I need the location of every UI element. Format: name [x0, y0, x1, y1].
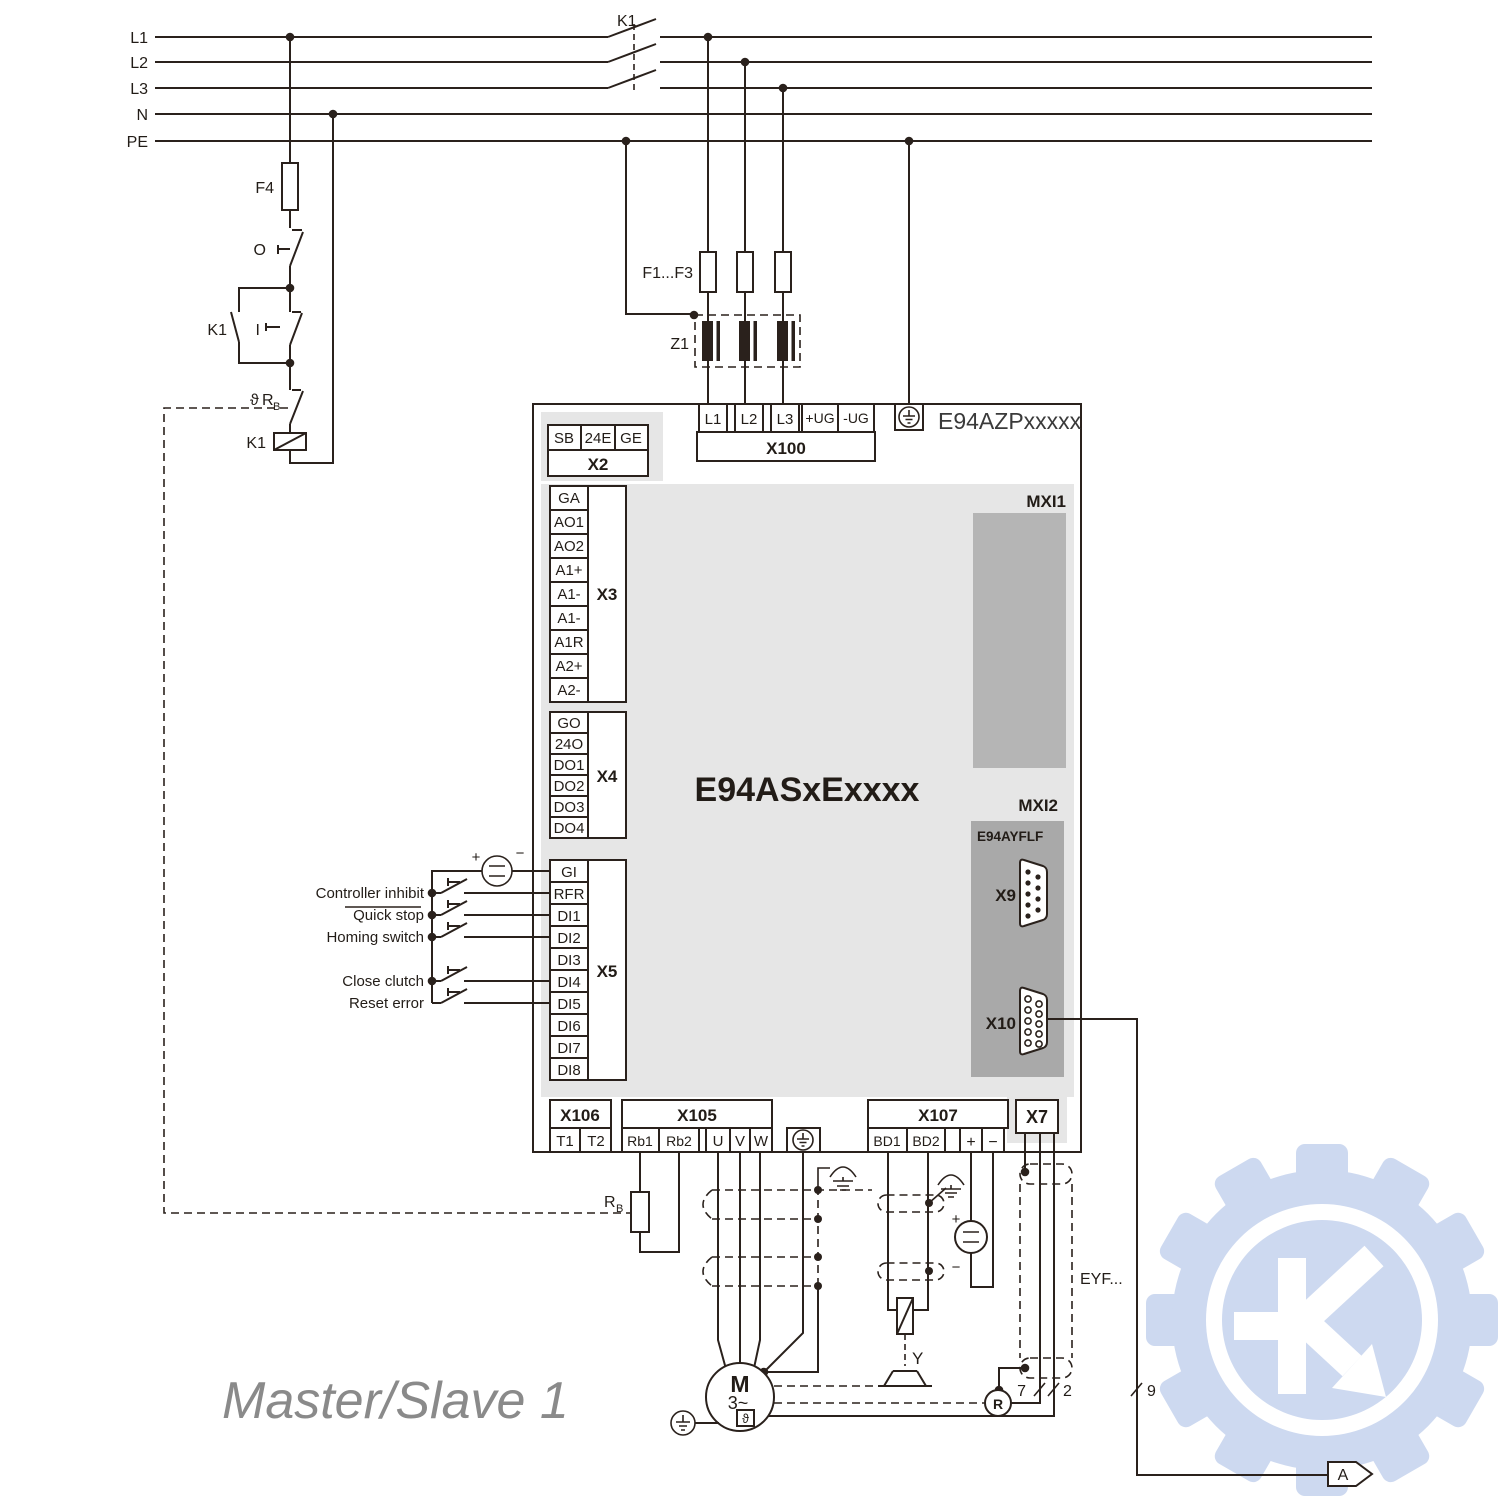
terminal-x2: SB 24E GE X2: [548, 425, 648, 476]
stop-button-contact: [278, 230, 303, 266]
x10-label: X10: [986, 1014, 1016, 1033]
terminal-x7-label: X7: [1026, 1107, 1048, 1127]
brake-circuit: Y + −: [878, 1152, 993, 1386]
pin-do2: DO2: [554, 778, 585, 795]
pin-a1r: A1R: [554, 634, 583, 651]
rail-label-n: N: [136, 107, 148, 124]
terminal-x5-label: X5: [597, 962, 618, 981]
pin-t1: T1: [556, 1133, 574, 1150]
terminal-x106-label: X106: [560, 1106, 600, 1125]
dc-supply-plus: +: [472, 849, 481, 866]
fuse-f4: [282, 163, 298, 210]
fuse-f1: [700, 252, 716, 292]
fuse-f2: [737, 252, 753, 292]
x10-connector: [1020, 988, 1047, 1055]
thermal-contact: [290, 363, 303, 433]
dc-supply-minus: −: [516, 845, 525, 862]
pin-rfr: RFR: [554, 886, 585, 903]
rail-label-l1: L1: [130, 30, 148, 47]
digital-input-circuit: + − Controller inhibit Quick stop Homing…: [316, 845, 550, 1012]
pin-plus-ug: +UG: [805, 410, 834, 426]
brake-resistor-sub: B: [616, 1203, 623, 1215]
pin-do4: DO4: [554, 820, 585, 837]
watermark-gear-logo: [1146, 1144, 1498, 1496]
motor-earth-icon: [671, 1411, 695, 1435]
rail-label-l2: L2: [130, 55, 148, 72]
feedback-circuit: EYF... R 7 2: [754, 1133, 1123, 1416]
pin-24o: 24O: [555, 736, 583, 753]
brake-resistor-label: R: [604, 1194, 616, 1211]
pin-ge: GE: [620, 430, 642, 447]
wire-count-2: 2: [1063, 1383, 1072, 1400]
mains-contactor-k1: K1: [608, 13, 656, 94]
eyf-shield-sides: [1020, 1184, 1072, 1358]
brake-symbol: [878, 1371, 932, 1386]
pin-u: U: [713, 1133, 724, 1150]
pin-a1m: A1-: [557, 586, 580, 603]
brake-resistor-circuit: R B: [604, 1152, 679, 1252]
fuse-f3: [775, 252, 791, 292]
motor-cable: [703, 1152, 872, 1376]
pin-bd2: BD2: [912, 1133, 939, 1149]
pin-di2: DI2: [557, 930, 580, 947]
terminal-x107: X107 BD1 BD2 + −: [868, 1100, 1008, 1152]
pin-di1: DI1: [557, 908, 580, 925]
module-body: [971, 821, 1064, 1077]
pin-l1: L1: [705, 411, 722, 428]
pin-sb: SB: [554, 430, 574, 447]
input-label-homing-switch: Homing switch: [326, 929, 424, 946]
terminal-x107-label: X107: [918, 1106, 958, 1125]
shield-earth-icon-2: [938, 1175, 964, 1197]
aux-contact-k1: [231, 288, 290, 363]
shield-earth-icon-1: [830, 1167, 856, 1190]
brake-label: Y: [912, 1349, 923, 1368]
pin-v: V: [735, 1133, 745, 1150]
thermal-contact-r: R: [262, 392, 274, 409]
mxi2-label: MXI2: [1018, 796, 1058, 815]
power-rails: L1 L2 L3 N PE: [127, 30, 1372, 151]
pin-24e: 24E: [585, 430, 612, 447]
pin-di8: DI8: [557, 1062, 580, 1079]
rail-label-l3: L3: [130, 81, 148, 98]
wire-count-7: 7: [1017, 1383, 1026, 1400]
pin-w: W: [754, 1133, 769, 1150]
pin-l3: L3: [777, 411, 794, 428]
pe-terminal-bottom: [787, 1128, 820, 1152]
pin-ao2: AO2: [554, 538, 584, 555]
resolver-label: R: [993, 1396, 1003, 1412]
wire-count-slashes: [1034, 1383, 1059, 1396]
pin-minus-ug: -UG: [843, 410, 869, 426]
pin-go: GO: [557, 715, 580, 732]
terminal-x3-label: X3: [597, 585, 618, 604]
brake-supply-minus: −: [952, 1259, 961, 1276]
pin-gi: GI: [561, 864, 577, 881]
terminal-x100: L1 L2 L3 +UG -UG X100: [697, 404, 875, 461]
pin-di7: DI7: [557, 1040, 580, 1057]
terminal-x3: GA AO1 AO2 A1+ A1- A1- A1R A2+ A2- X3: [550, 486, 626, 702]
pin-do3: DO3: [554, 799, 585, 816]
drive-type-label: E94ASxExxxx: [695, 771, 920, 809]
pin-di4: DI4: [557, 974, 580, 991]
feedback-module: E94AYFLF X9 X10: [971, 821, 1064, 1077]
rail-label-pe: PE: [127, 134, 148, 151]
terminal-x100-label: X100: [766, 439, 806, 458]
start-button-label: I: [256, 322, 260, 339]
thermal-contact-b: B: [273, 401, 280, 413]
terminal-x105: X105 Rb1 Rb2 U V W: [622, 1100, 772, 1152]
aux-contact-label: K1: [207, 322, 227, 339]
wiring-diagram-page: L1 L2 L3 N PE K1 F4 O K1 I: [0, 0, 1500, 1500]
fuse-f4-label: F4: [255, 180, 274, 197]
terminal-x4: GO 24O DO1 DO2 DO3 DO4 X4: [550, 712, 626, 838]
power-board-label: E94AZPxxxxx: [938, 408, 1082, 434]
terminal-x4-label: X4: [597, 767, 618, 786]
servo-drive: E94AZPxxxxx E94ASxExxxx SB 24E GE X2 L1 …: [533, 404, 1082, 1152]
pin-rb1: Rb1: [627, 1133, 653, 1149]
pin-a1p: A1+: [555, 562, 582, 579]
input-label-quick-stop: Quick stop: [353, 907, 424, 924]
start-button-contact: [266, 288, 302, 363]
input-label-close-clutch: Close clutch: [342, 973, 424, 990]
eyf-cable-label: EYF...: [1080, 1271, 1123, 1288]
brake-supply-plus: +: [952, 1211, 961, 1228]
stop-button-label: O: [254, 242, 266, 259]
mxi1-slot: [973, 513, 1066, 768]
pin-l2: L2: [741, 411, 758, 428]
pin-do1: DO1: [554, 757, 585, 774]
pe-terminal-top: [895, 404, 923, 430]
x9-label: X9: [995, 886, 1016, 905]
line-fuses-label: F1...F3: [642, 265, 693, 282]
input-label-controller-inhibit: Controller inhibit: [316, 885, 425, 902]
cable-shield-1: [703, 1190, 872, 1219]
terminal-x105-label: X105: [677, 1106, 717, 1125]
pin-a2m: A2-: [557, 682, 580, 699]
pin-di3: DI3: [557, 952, 580, 969]
pin-di5: DI5: [557, 996, 580, 1013]
pin-a1m2: A1-: [557, 610, 580, 627]
mxi1-label: MXI1: [1026, 492, 1066, 511]
pin-rb2: Rb2: [666, 1133, 692, 1149]
pin-bd1: BD1: [873, 1133, 900, 1149]
terminal-x7: X7: [1016, 1100, 1058, 1133]
dc-supply-icon: [482, 856, 512, 886]
servo-drive-wiring-diagram: L1 L2 L3 N PE K1 F4 O K1 I: [0, 0, 1500, 1500]
wire-count-9: 9: [1147, 1383, 1156, 1400]
pin-ao1: AO1: [554, 514, 584, 531]
sheet-ref-label: A: [1338, 1467, 1349, 1484]
pin-ga: GA: [558, 490, 580, 507]
pin-a2p: A2+: [555, 658, 582, 675]
filter-z1-label: Z1: [670, 336, 689, 353]
thermal-contact-theta: ϑ: [250, 392, 259, 409]
pin-di6: DI6: [557, 1018, 580, 1035]
sheet-ref-arrow: [1328, 1462, 1372, 1486]
motor: M 3~ ϑ: [671, 1363, 774, 1435]
motor-temp-sensor: ϑ: [742, 1412, 749, 1426]
terminal-x5: GI RFR DI1 DI2 DI3 DI4 DI5 DI6 DI7 DI8 X…: [550, 860, 626, 1080]
terminal-x106: X106 T1 T2: [550, 1100, 611, 1152]
pin-brake-plus: +: [966, 1134, 975, 1151]
cable-shield-2: [703, 1257, 814, 1286]
pin-brake-minus: −: [988, 1134, 997, 1151]
input-label-reset-error: Reset error: [349, 995, 424, 1012]
contactor-coil-label: K1: [246, 435, 266, 452]
terminal-x2-label: X2: [588, 455, 609, 474]
x9-connector: [1020, 860, 1047, 927]
page-title: Master/Slave 1: [222, 1372, 569, 1430]
pin-t2: T2: [587, 1133, 605, 1150]
brake-resistor: [631, 1192, 649, 1232]
module-label: E94AYFLF: [977, 829, 1043, 844]
